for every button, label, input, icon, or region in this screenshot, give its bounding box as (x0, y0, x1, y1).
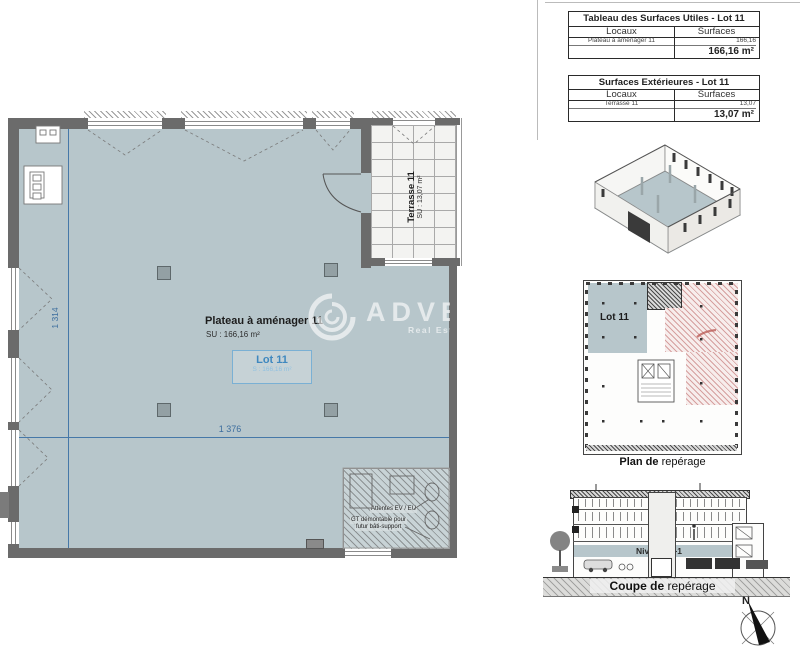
window-opening (8, 358, 19, 422)
column-divider (674, 89, 675, 121)
window-opening (316, 118, 350, 129)
row-label: Plateau à aménager 11 (569, 37, 674, 46)
plan-sheet: 1 314 1 376 Plateau à aménager 11 SU : 1… (0, 0, 800, 646)
facade-ticks (585, 286, 588, 448)
section-annex (732, 523, 764, 579)
caption-bold: Coupe de (609, 579, 664, 593)
facade-fixture (0, 492, 9, 518)
facade-hatch-bottom (586, 445, 737, 451)
facade-ticks (735, 286, 738, 448)
red-hatch-area (686, 352, 738, 405)
table-total: 166,16 m² (674, 45, 754, 58)
column-divider (674, 26, 675, 58)
facade-ticks (586, 282, 737, 285)
table-title: Surfaces Extérieures - Lot 11 (569, 76, 759, 90)
location-lot-label: Lot 11 (600, 312, 629, 323)
table-total: 13,07 m² (674, 108, 754, 121)
window-opening (8, 430, 19, 486)
sill-hatch (312, 111, 354, 118)
frame-line-top (545, 2, 800, 3)
location-plan-caption: Plan de repérage (585, 456, 740, 468)
terrace-edge (456, 118, 462, 266)
compass-icon (741, 601, 775, 645)
floor-plan: 1 314 1 376 Plateau à aménager 11 SU : 1… (0, 0, 470, 600)
north-needle (748, 601, 770, 645)
advenis-swirl-icon (306, 291, 358, 343)
section-entrance (651, 558, 672, 577)
left-wall (8, 118, 19, 558)
sill-hatch (372, 111, 456, 118)
north-label: N (742, 595, 750, 607)
row-label: Terrasse 11 (569, 100, 674, 109)
window-opening (345, 548, 391, 558)
sill-hatch (84, 111, 166, 118)
caption-bold: Plan de (619, 456, 658, 468)
window-opening (88, 118, 162, 129)
axonometric-view (570, 133, 755, 258)
watermark-clip: ADVENIS Real Estate Solutions (19, 129, 450, 548)
frame-line-vertical (537, 0, 538, 140)
red-hatch-area (665, 308, 682, 352)
lot-terrace-hatch (647, 282, 682, 310)
window-opening (8, 268, 19, 330)
right-wall (449, 258, 457, 558)
red-hatch-area (682, 283, 738, 352)
section-caption: Coupe de repérage (590, 579, 735, 593)
surfaces-utiles-table: Tableau des Surfaces Utiles - Lot 11 Loc… (568, 11, 760, 59)
caption-regular: repérage (659, 456, 706, 468)
surfaces-exterieures-table: Surfaces Extérieures - Lot 11 Locaux Sur… (568, 75, 760, 122)
window-opening (185, 118, 303, 129)
terrace-opening (393, 118, 435, 125)
caption-regular: repérage (664, 579, 715, 593)
watermark-tagline: Real Estate Solutions (408, 325, 450, 335)
sill-hatch (181, 111, 307, 118)
table-title: Tableau des Surfaces Utiles - Lot 11 (569, 12, 759, 27)
watermark-brand: ADVENIS (366, 299, 450, 325)
watermark: ADVENIS Real Estate Solutions (306, 291, 450, 343)
window-opening (8, 522, 19, 544)
